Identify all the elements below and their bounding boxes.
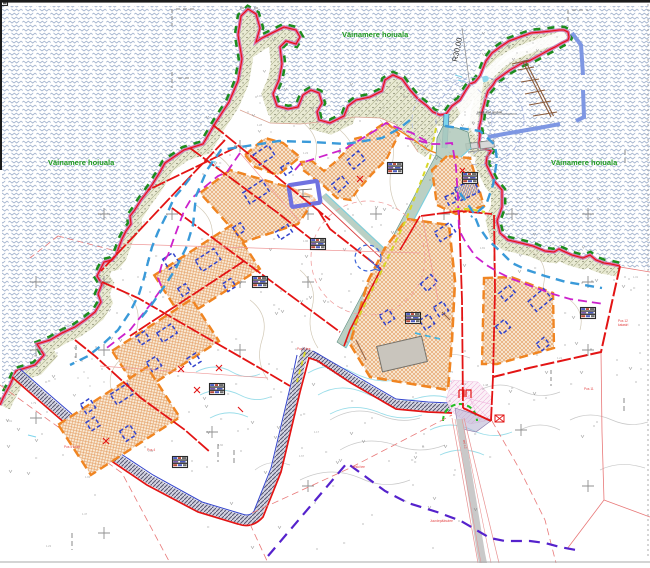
svg-text:1.55: 1.55: [273, 78, 279, 82]
svg-text:Pos 4: Pos 4: [147, 448, 155, 452]
svg-text:1.23: 1.23: [46, 544, 52, 548]
svg-text:Juurdepääsutee: Juurdepääsutee: [430, 519, 453, 523]
svg-text:1.18: 1.18: [562, 257, 568, 261]
svg-text:Väinamere hoiuala: Väinamere hoiuala: [48, 158, 115, 167]
svg-text:1.17: 1.17: [314, 430, 320, 434]
svg-text:1.97: 1.97: [257, 94, 263, 98]
svg-text:paadisillad ujuvkail: paadisillad ujuvkail: [477, 110, 502, 114]
svg-text:1.28: 1.28: [257, 123, 263, 127]
svg-text:1.99: 1.99: [403, 95, 409, 99]
svg-text:1.91: 1.91: [7, 419, 13, 423]
svg-text:1.93: 1.93: [85, 475, 91, 479]
svg-text:1.58: 1.58: [32, 354, 38, 358]
svg-text:1.21: 1.21: [557, 356, 563, 360]
svg-text:katastri: katastri: [618, 323, 629, 327]
svg-text:1.48: 1.48: [483, 383, 489, 387]
svg-text:Väinamere hoiuala: Väinamere hoiuala: [342, 30, 409, 39]
svg-text:1.91: 1.91: [461, 382, 467, 386]
svg-text:1.60: 1.60: [218, 443, 224, 447]
svg-text:Väinamere hoiuala: Väinamere hoiuala: [551, 158, 618, 167]
svg-text:1.31: 1.31: [633, 275, 639, 279]
svg-text:1.81: 1.81: [480, 246, 486, 250]
svg-text:Pos 11: Pos 11: [584, 387, 594, 391]
svg-text:Pos 3 tee: Pos 3 tee: [297, 347, 311, 351]
svg-text:Veski tee: Veski tee: [352, 465, 365, 469]
svg-text:1.79: 1.79: [31, 401, 37, 405]
svg-text:1.47: 1.47: [82, 512, 88, 516]
svg-text:1.34: 1.34: [485, 83, 491, 87]
svg-text:1.23: 1.23: [303, 151, 309, 155]
svg-text:Pos 5 krunt: Pos 5 krunt: [64, 445, 80, 449]
svg-text:1.96: 1.96: [303, 239, 309, 243]
svg-text:1.67: 1.67: [299, 454, 305, 458]
